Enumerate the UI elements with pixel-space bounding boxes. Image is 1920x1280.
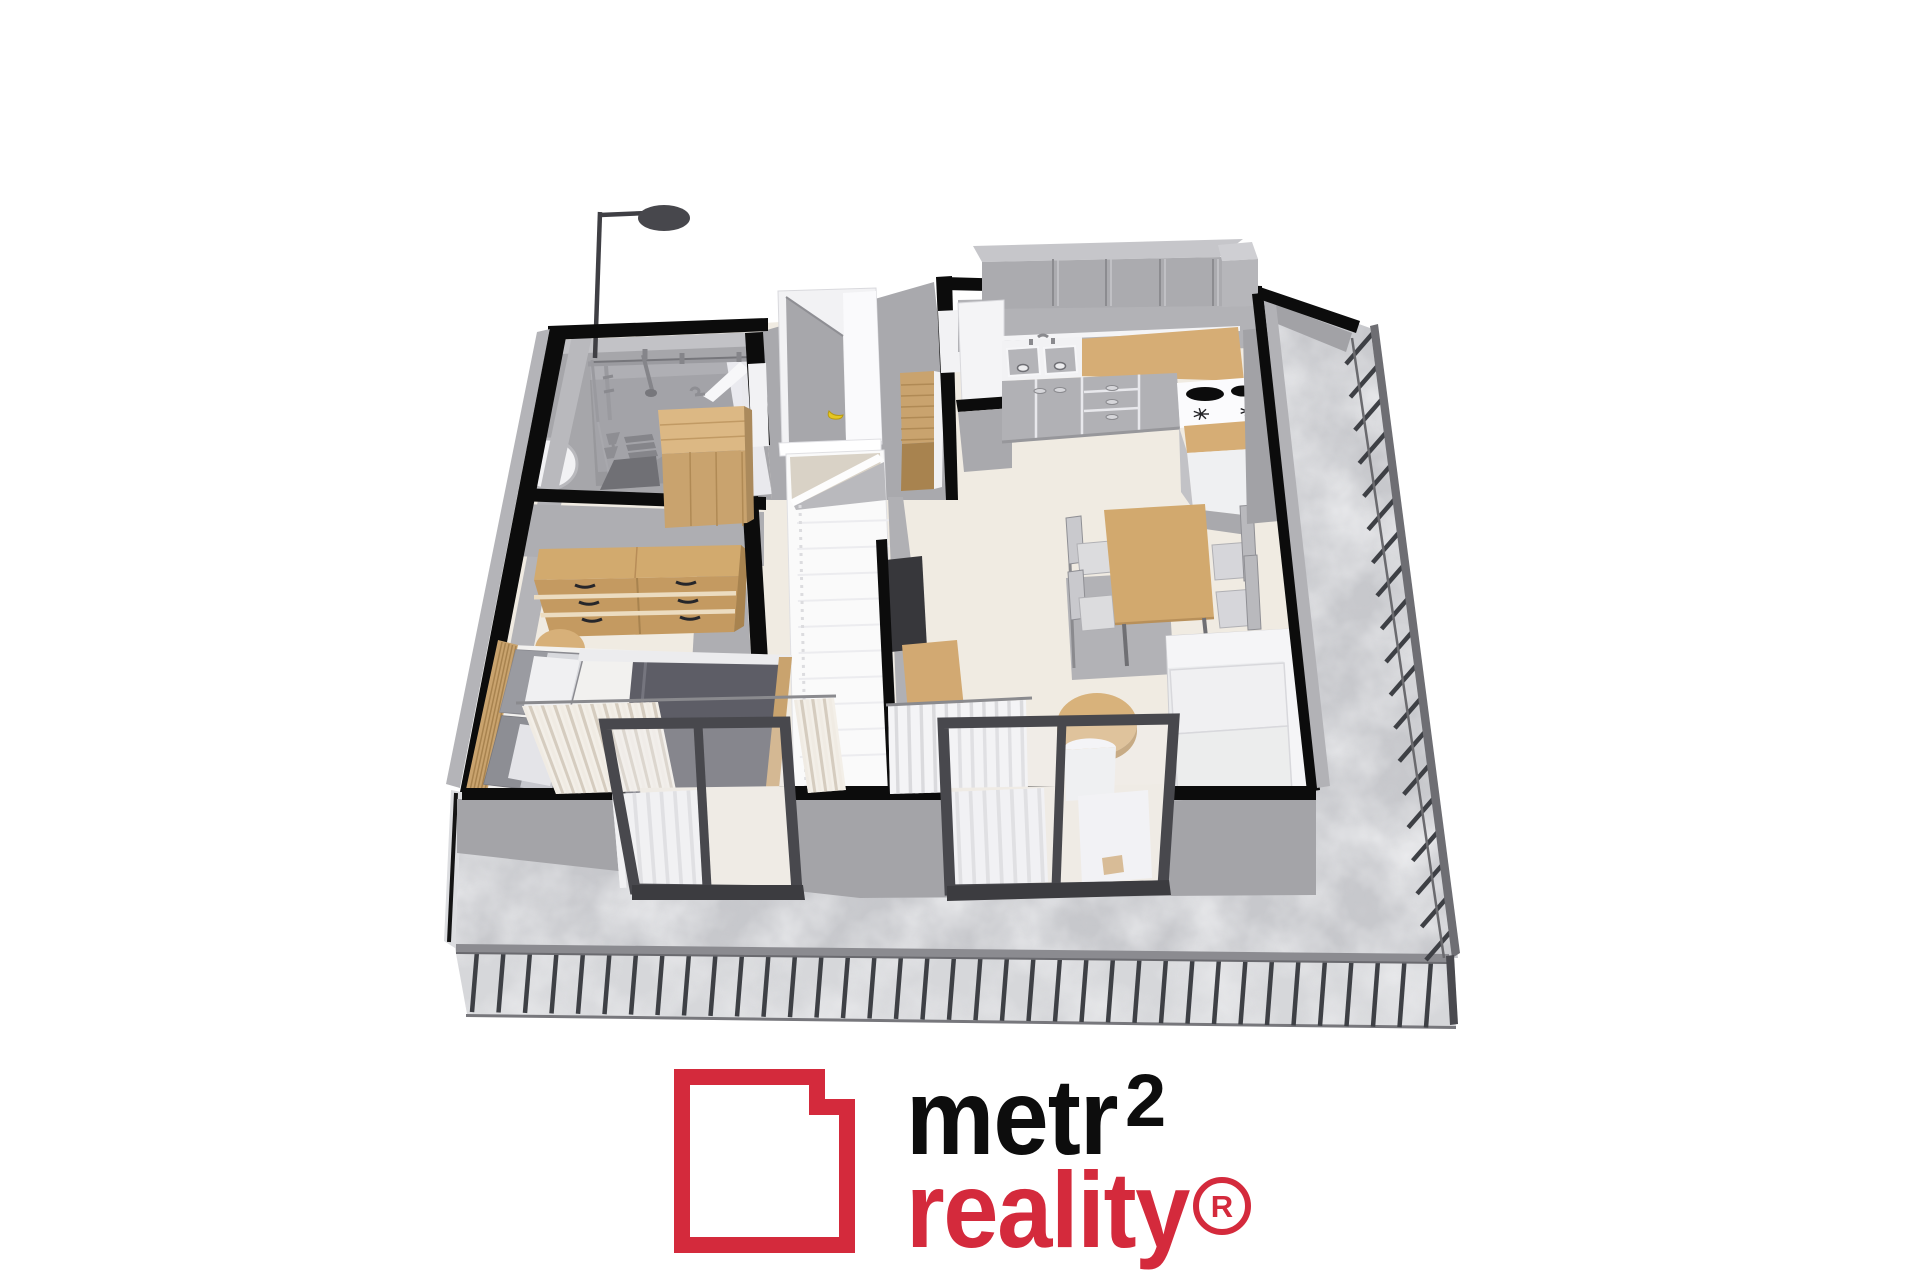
svg-text:2: 2 <box>1125 1059 1166 1142</box>
svg-text:reality: reality <box>906 1149 1191 1270</box>
svg-text:R: R <box>1211 1189 1233 1224</box>
